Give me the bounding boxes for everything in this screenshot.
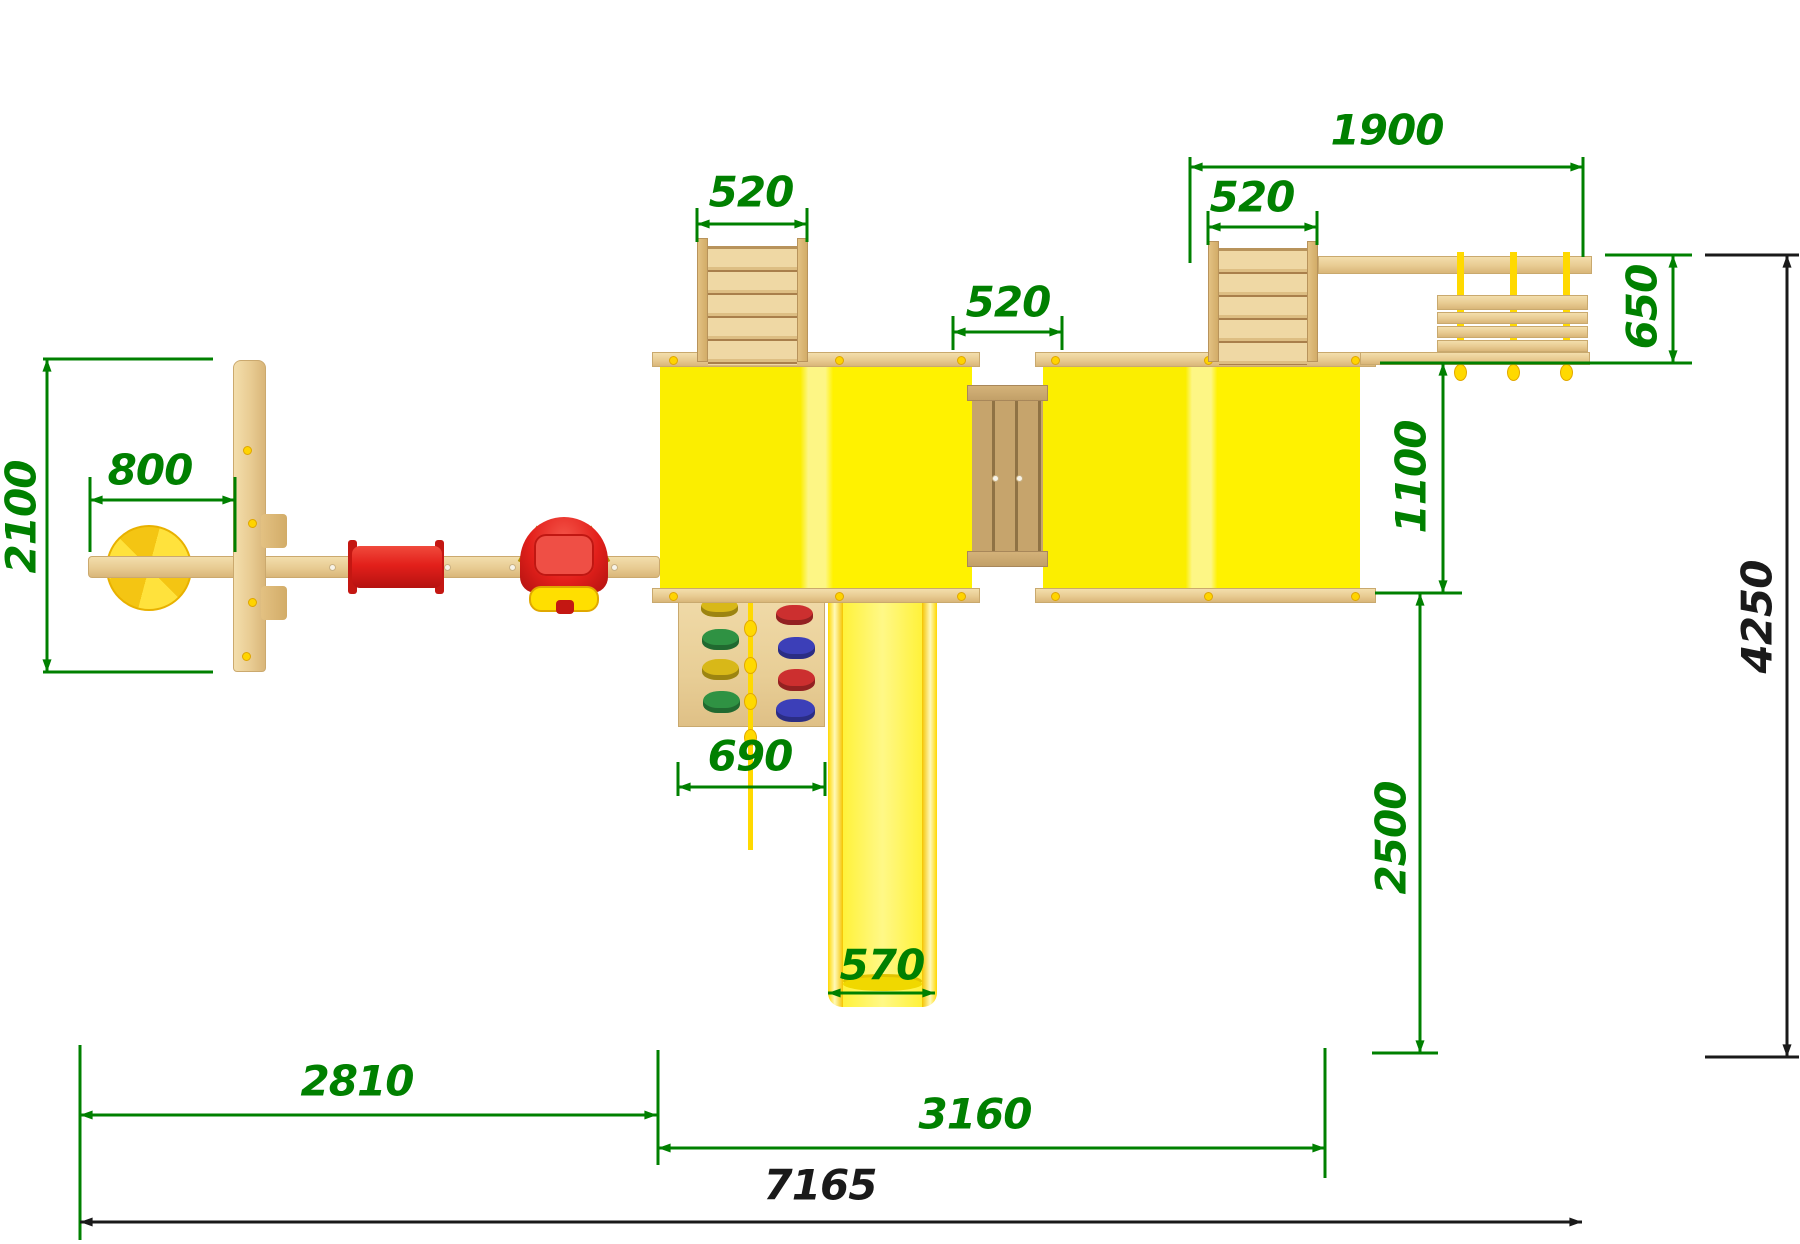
green-dimensions [43, 157, 1692, 1240]
playground-top-view-drawing: 1900 520 520 520 650 1100 800 2100 690 5… [0, 0, 1800, 1244]
black-dimensions [80, 255, 1799, 1222]
dimension-lines [0, 0, 1800, 1244]
